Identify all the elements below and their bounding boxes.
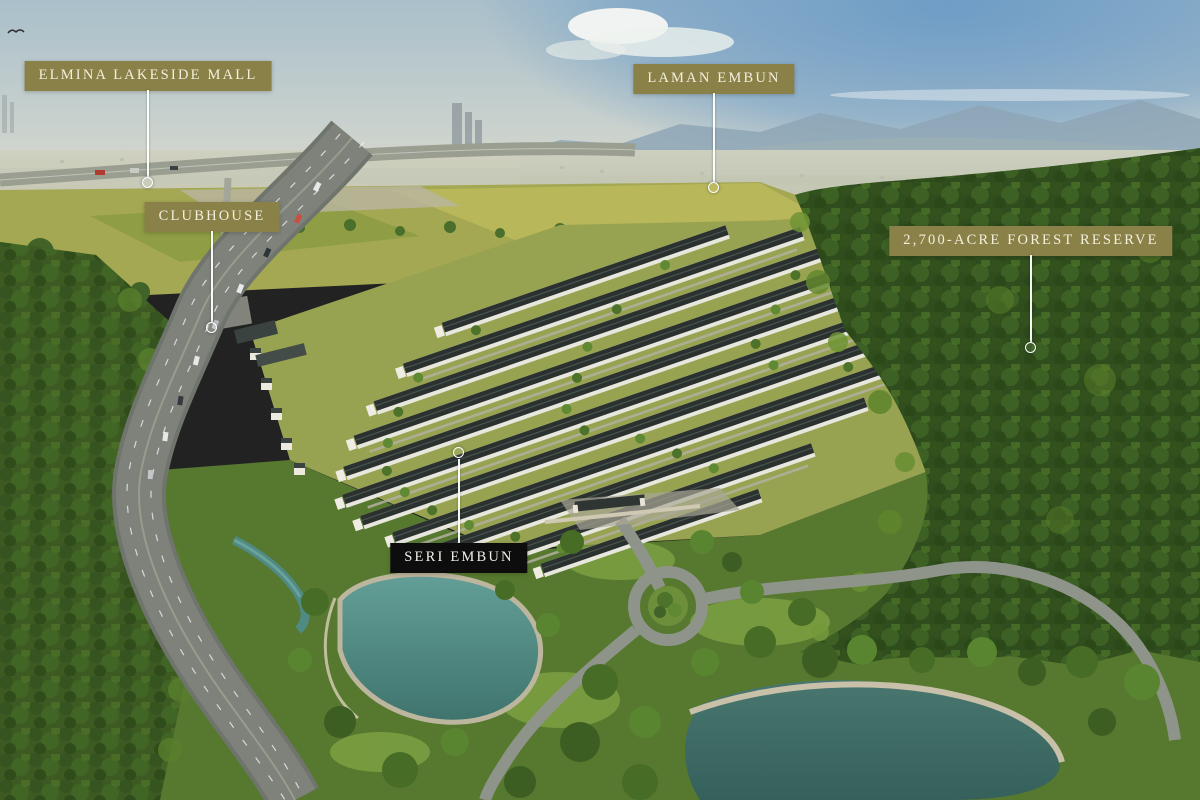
callout-label: LAMAN EMBUN xyxy=(633,64,794,94)
scene xyxy=(0,0,1200,800)
location-marker xyxy=(453,447,464,458)
leader-line xyxy=(211,231,213,322)
location-marker xyxy=(708,182,719,193)
callout-label: 2,700-ACRE FOREST RESERVE xyxy=(889,226,1172,256)
callout-label: ELMINA LAKESIDE MALL xyxy=(25,61,272,91)
aerial-render: ELMINA LAKESIDE MALL LAMAN EMBUN CLUBHOU… xyxy=(0,0,1200,800)
location-marker xyxy=(1025,342,1036,353)
truck xyxy=(95,170,105,175)
leader-line xyxy=(147,90,149,177)
callout-label: SERI EMBUN xyxy=(390,543,527,573)
leader-line xyxy=(713,93,715,182)
leader-line xyxy=(458,459,460,543)
location-marker xyxy=(206,322,217,333)
location-marker xyxy=(142,177,153,188)
callout-label: CLUBHOUSE xyxy=(145,202,280,232)
leader-line xyxy=(1030,255,1032,342)
